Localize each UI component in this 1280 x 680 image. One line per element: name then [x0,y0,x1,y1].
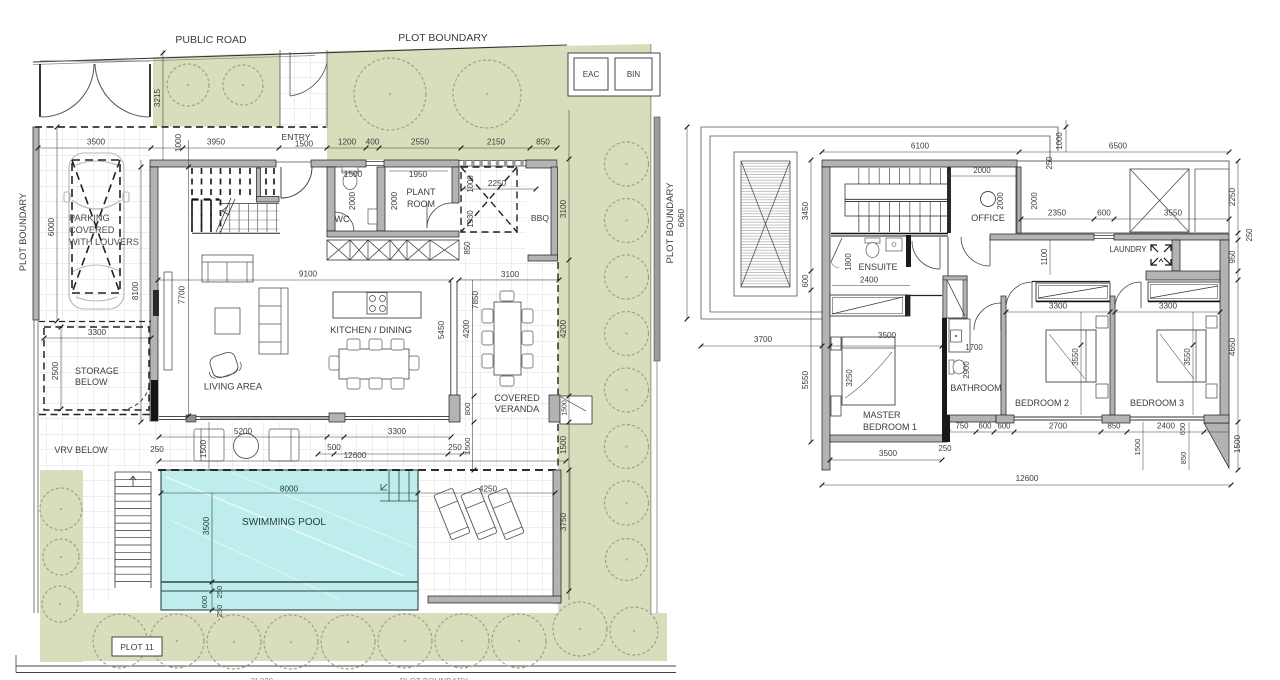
svg-text:8100: 8100 [131,281,140,300]
svg-text:1500: 1500 [199,439,208,458]
svg-text:1500: 1500 [1233,434,1242,453]
svg-text:9100: 9100 [299,270,318,279]
svg-text:850: 850 [536,138,550,147]
svg-text:250: 250 [215,605,224,618]
svg-text:PLOT BOUNDARY: PLOT BOUNDARY [18,193,28,271]
svg-text:1500: 1500 [1133,439,1142,456]
svg-text:3300: 3300 [88,328,107,337]
svg-text:8000: 8000 [280,485,299,494]
svg-text:600: 600 [1097,209,1111,218]
svg-text:600: 600 [801,274,810,288]
svg-text:250: 250 [150,445,164,454]
svg-text:5550: 5550 [801,370,810,389]
svg-text:BELOW: BELOW [75,377,108,387]
svg-text:LAUNDRY: LAUNDRY [1109,245,1147,254]
svg-text:1000: 1000 [1055,132,1064,150]
svg-text:VRV BELOW: VRV BELOW [54,445,108,455]
svg-text:PLANT: PLANT [406,187,436,197]
svg-text:PARKING: PARKING [69,213,110,223]
svg-text:2700: 2700 [1049,422,1068,431]
svg-text:2500: 2500 [51,361,60,380]
svg-text:OFFICE: OFFICE [971,213,1005,223]
svg-text:PLOT BOUNDARY: PLOT BOUNDARY [398,32,487,44]
svg-text:1500: 1500 [295,140,314,149]
svg-text:1950: 1950 [409,170,428,179]
svg-text:2900: 2900 [962,361,971,379]
svg-text:BIN: BIN [627,70,641,79]
svg-text:3500: 3500 [878,331,897,340]
svg-text:3300: 3300 [1049,302,1068,311]
svg-text:4200: 4200 [462,319,471,338]
svg-text:PUBLIC ROAD: PUBLIC ROAD [175,34,247,46]
svg-text:3950: 3950 [207,138,226,147]
svg-text:3450: 3450 [801,201,810,220]
svg-text:1000: 1000 [466,175,475,193]
svg-text:PLOT BOUNDARY: PLOT BOUNDARY [665,182,676,264]
svg-text:3250: 3250 [845,369,854,387]
svg-text:6060: 6060 [677,208,686,227]
svg-text:6500: 6500 [1109,142,1128,151]
svg-text:3500: 3500 [202,516,211,535]
svg-text:3100: 3100 [501,270,520,279]
svg-text:4650: 4650 [1228,337,1237,356]
svg-text:1500: 1500 [559,435,568,454]
svg-text:2400: 2400 [860,276,879,285]
svg-text:PLOT 11: PLOT 11 [120,642,154,652]
svg-text:2000: 2000 [973,166,991,175]
svg-text:3700: 3700 [754,335,773,344]
svg-text:7700: 7700 [178,285,187,304]
svg-text:EAC: EAC [583,70,600,79]
svg-text:WITH LOUVERS: WITH LOUVERS [69,237,139,247]
svg-text:600: 600 [200,596,209,609]
svg-text:1700: 1700 [965,343,983,352]
svg-text:650: 650 [1178,423,1187,435]
svg-text:KITCHEN / DINING: KITCHEN / DINING [330,324,412,335]
svg-text:3100: 3100 [559,199,568,218]
svg-text:250: 250 [938,444,952,453]
svg-text:750: 750 [955,422,969,431]
svg-text:1100: 1100 [1040,248,1049,265]
svg-text:250: 250 [1045,156,1054,170]
svg-text:3500: 3500 [879,449,898,458]
svg-text:400: 400 [366,138,380,147]
svg-text:1000: 1000 [174,133,183,152]
svg-text:COVERED: COVERED [69,225,115,235]
svg-text:WC: WC [335,214,350,224]
svg-text:2000: 2000 [996,192,1005,210]
svg-text:2350: 2350 [1048,209,1067,218]
svg-text:5450: 5450 [437,320,446,339]
svg-text:BEDROOM 1: BEDROOM 1 [863,422,917,432]
svg-text:2000: 2000 [348,191,357,210]
svg-text:1500: 1500 [344,170,363,179]
svg-text:2250: 2250 [1228,187,1237,206]
svg-text:COVERED: COVERED [494,393,540,403]
svg-text:3750: 3750 [559,512,568,531]
svg-text:250: 250 [1245,228,1254,242]
svg-text:600: 600 [978,422,992,431]
svg-text:850: 850 [1107,422,1121,431]
svg-text:3215: 3215 [153,88,162,107]
svg-text:5200: 5200 [234,427,253,436]
svg-text:500: 500 [327,443,341,452]
svg-text:BEDROOM 3: BEDROOM 3 [1130,398,1184,408]
svg-text:4200: 4200 [559,319,568,338]
svg-text:6100: 6100 [911,142,930,151]
svg-text:SWIMMING POOL: SWIMMING POOL [242,517,326,528]
svg-text:2250: 2250 [488,179,507,188]
svg-text:7850: 7850 [471,290,480,309]
svg-text:250: 250 [215,586,224,599]
svg-text:3300: 3300 [388,427,407,436]
svg-text:2000: 2000 [1030,192,1039,210]
svg-text:3500: 3500 [87,138,106,147]
svg-text:ROOM: ROOM [407,199,435,209]
svg-text:4250: 4250 [479,485,498,494]
svg-text:LIVING AREA: LIVING AREA [204,381,263,392]
svg-text:12600: 12600 [344,451,367,460]
svg-text:2550: 2550 [411,138,430,147]
svg-text:2150: 2150 [487,138,506,147]
svg-text:BATHROOM: BATHROOM [950,383,1001,393]
svg-text:6000: 6000 [47,217,56,236]
svg-text:ENSUITE: ENSUITE [858,262,897,272]
svg-text:2000: 2000 [390,191,399,210]
svg-text:VERANDA: VERANDA [495,404,540,414]
svg-text:850: 850 [463,241,472,255]
svg-text:1200: 1200 [338,138,357,147]
svg-text:3300: 3300 [1159,302,1178,311]
svg-text:12600: 12600 [1016,474,1039,483]
svg-text:1930: 1930 [466,210,475,228]
svg-text:250: 250 [448,443,462,452]
svg-text:STORAGE: STORAGE [75,366,119,376]
svg-text:BEDROOM 2: BEDROOM 2 [1015,398,1069,408]
svg-text:600: 600 [997,422,1011,431]
svg-text:3550: 3550 [1183,348,1192,366]
svg-text:1800: 1800 [844,253,853,271]
svg-text:BBQ: BBQ [531,213,549,223]
svg-text:800: 800 [463,403,472,416]
svg-text:950: 950 [1228,250,1237,264]
svg-text:3550: 3550 [1164,209,1183,218]
svg-text:2400: 2400 [1157,422,1176,431]
svg-text:3550: 3550 [1071,348,1080,366]
svg-text:1500: 1500 [562,400,569,416]
svg-text:MASTER: MASTER [863,410,901,420]
svg-text:850: 850 [1179,452,1188,465]
